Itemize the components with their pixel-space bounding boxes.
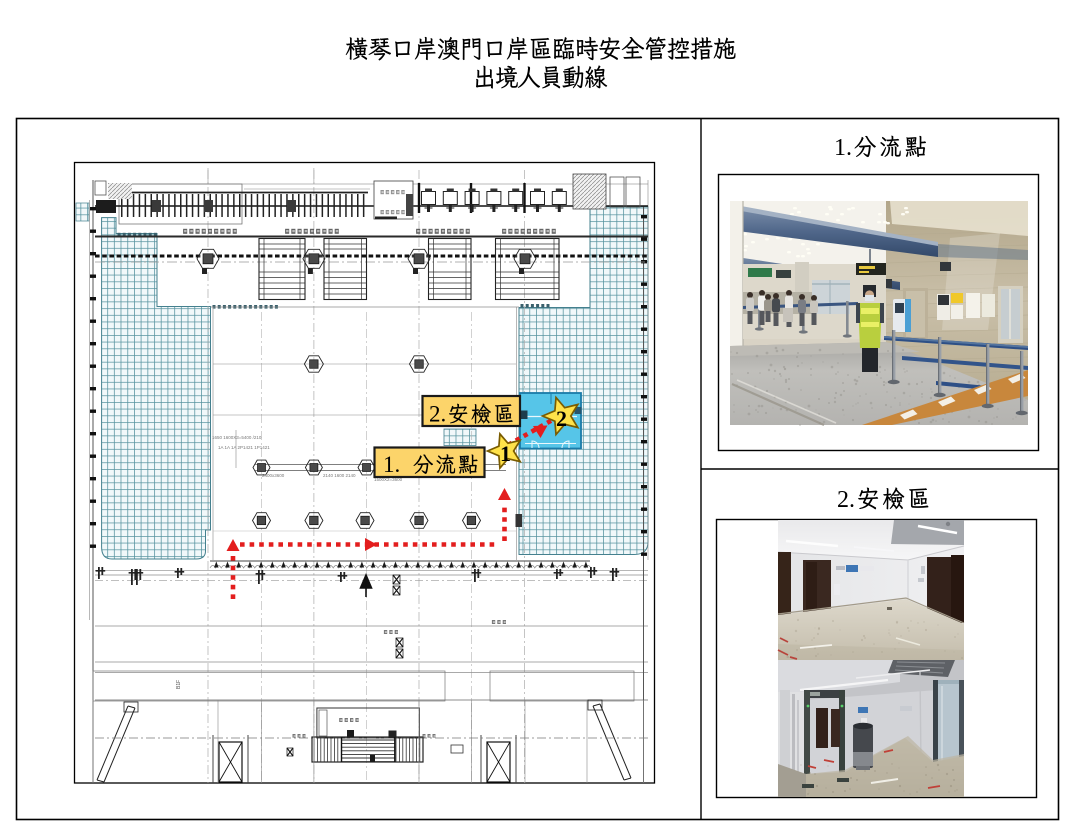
svg-text:1.: 1. (834, 135, 852, 161)
svg-text:1650 1600X3=5400 /210: 1650 1600X3=5400 /210 (212, 435, 262, 440)
svg-text:B1F: B1F (176, 680, 182, 689)
svg-text:2.: 2. (837, 487, 855, 513)
svg-text:1A 1A 1A 2P1421 1P1421: 1A 1A 1A 2P1421 1P1421 (218, 445, 270, 450)
svg-text:2.: 2. (429, 402, 446, 427)
svg-text:1.: 1. (383, 452, 400, 477)
svg-text:2140 1600 2140: 2140 1600 2140 (323, 473, 356, 478)
svg-text:2400x3600: 2400x3600 (262, 473, 285, 478)
svg-text:1: 1 (500, 441, 511, 466)
svg-text:2: 2 (556, 406, 567, 431)
